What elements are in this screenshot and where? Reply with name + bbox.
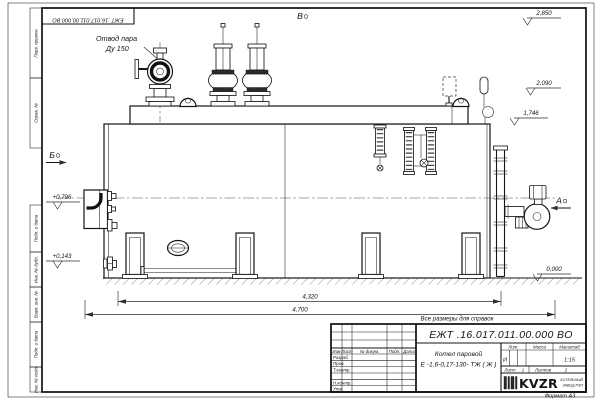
elevation-2090: 2,090: [535, 80, 552, 87]
margin-box-label: Взам. инв. №: [34, 291, 39, 318]
kvzr-logo: KVZR КОТЕЛЬНЫЙ ЗАВОД РЭП: [504, 376, 583, 391]
margin-box-label: Подп. и дата: [34, 214, 39, 242]
dimension-value: 4,320: [302, 294, 318, 301]
row-prov: Пров.: [333, 361, 345, 366]
format-label: Формат А3: [545, 394, 576, 400]
col-list: Лист: [340, 349, 353, 354]
product-designation: Е -1,6-0,17-130- ТЖ ( Ж ): [421, 362, 497, 369]
logo-sub-1: КОТЕЛЬНЫЙ: [560, 378, 583, 382]
title-doc-number: ЕЖТ .16.017.011.00.000 ВО: [429, 329, 573, 341]
title-block: ЕЖТ .16.017.011.00.000 ВО Котел паровой …: [331, 324, 586, 392]
elevation-0000: 0,000: [546, 266, 562, 273]
elevation-2850: 2,850: [535, 10, 552, 17]
margin-box-label: Перв. примен.: [34, 28, 39, 57]
view-label-right: А: [555, 196, 562, 206]
margin-box-label: Инв. № дубл.: [34, 256, 39, 283]
top-casing: [130, 106, 468, 124]
safety-valve: [242, 24, 271, 107]
col-docnum: № докум.: [360, 349, 379, 354]
massa-header: Масса: [533, 344, 547, 349]
lit-header: Лит.: [507, 344, 518, 349]
stamp-top-left: ЕЖТ .16.017.011.00.000 ВО: [52, 17, 124, 23]
row-razrab: Разраб.: [333, 355, 349, 360]
margin-box-label: Инв. № подл.: [34, 366, 39, 393]
safety-valve: [208, 24, 237, 107]
row-utv: Утв.: [333, 387, 343, 392]
reference-note: Все размеры для справок: [421, 316, 495, 323]
row-tkontr: Т.контр.: [333, 367, 351, 372]
margin-column: Перв. примен. Справ. № Подп. и дата Инв.…: [30, 8, 42, 393]
scale-value: 1:15: [564, 358, 576, 364]
margin-box-label: Подп. и дата: [34, 330, 39, 358]
elevation-1746: 1,746: [523, 110, 539, 117]
dimension-value: 4,700: [292, 307, 308, 314]
masshtab-header: Масштаб: [559, 344, 580, 349]
logo-sub-2: ЗАВОД РЭП: [562, 384, 583, 388]
logo-text: KVZR: [519, 376, 558, 391]
view-label-left: Б: [49, 150, 55, 160]
steam-outlet-label: Отвод пара: [96, 34, 137, 43]
ground-line: [103, 278, 582, 285]
elevation-0796: +0,796: [53, 194, 72, 201]
burner-unit: [84, 190, 108, 229]
sheet-value: 1: [522, 368, 525, 373]
feed-pump: [505, 186, 550, 230]
dimension-4320: 4,320: [118, 291, 501, 306]
manhole: [167, 241, 189, 256]
pump-motor: [530, 186, 547, 200]
row-nkontr: Н.контр.: [333, 380, 352, 385]
product-name: Котел паровой: [435, 350, 483, 358]
margin-box-label: Справ. №: [34, 103, 39, 123]
sheets-label: Листов: [534, 368, 552, 373]
col-data: Дата: [402, 349, 415, 354]
valve-handwheel: [135, 60, 139, 79]
elevation-0143: +0,143: [53, 253, 72, 260]
boiler-drawing-svg: ЕЖТ .16.017.011.00.000 ВО Перв. примен. …: [0, 0, 600, 400]
col-izm: Изм: [332, 349, 340, 354]
lit-value: И: [503, 358, 507, 364]
col-podp: Подп.: [389, 349, 401, 354]
steam-outlet-dn-label: Ду 150: [105, 44, 129, 53]
drawing-sheet: ЕЖТ .16.017.011.00.000 ВО Перв. примен. …: [0, 0, 600, 400]
sheet-label: Лист: [503, 368, 516, 373]
view-label-top: В: [297, 11, 303, 21]
lifting-lug: [180, 98, 196, 107]
sheets-value: 2: [564, 368, 568, 373]
cable-sensor: [480, 77, 494, 124]
lifting-lug: [453, 98, 469, 107]
